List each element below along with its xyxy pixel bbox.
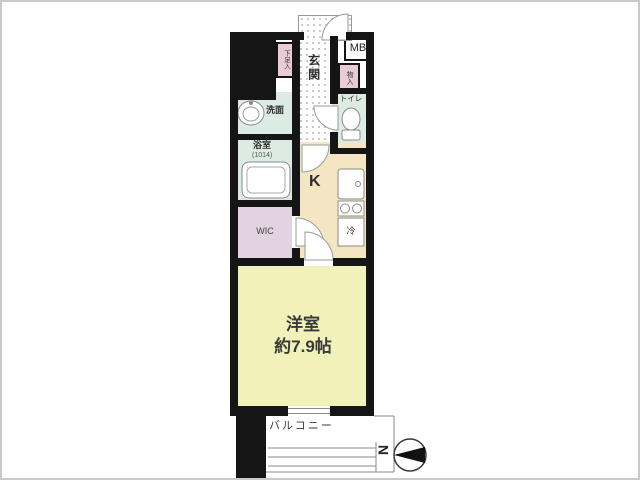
wall-ps-block — [230, 32, 276, 100]
bathroom-label: 浴室 — [253, 141, 271, 150]
floor-plan: N PS MB 下足入 物入 洗濯機 棚 玄関 トイレ 洗面 浴室 (1014)… — [0, 0, 640, 480]
hall-kitchen-door-arc — [302, 145, 329, 172]
main-room-area-label: 約7.9帖 — [274, 338, 332, 356]
wall-toilet-bottom — [330, 148, 374, 154]
toilet-icon — [342, 108, 360, 140]
wall-entrance-right — [330, 36, 338, 92]
stove-icon — [338, 201, 364, 216]
entrance-label: 玄関 — [307, 54, 320, 82]
washer-pan-icon — [338, 169, 364, 199]
bathroom-size-label: (1014) — [252, 152, 272, 159]
balcony-label: バルコニー — [269, 421, 334, 433]
sink-icon — [238, 101, 264, 125]
kitchen-label: K — [309, 174, 321, 191]
fixtures-layer: N — [2, 2, 640, 480]
compass-north-label: N — [375, 445, 391, 455]
wall-balcony-pillar — [236, 414, 266, 480]
washroom-label: 洗面 — [266, 106, 284, 115]
wall-wic-mainroom — [230, 258, 304, 266]
main-room-door-arc — [305, 232, 333, 260]
wall-core-vertical-upper — [292, 36, 300, 216]
bathtub-icon — [242, 162, 290, 198]
toilet-label: トイレ — [334, 95, 368, 103]
toilet-door-arc — [314, 106, 338, 130]
north-compass-icon: N — [375, 439, 426, 471]
wic-label-wrap: WIC — [238, 206, 292, 258]
fridge-label: 冷 — [346, 227, 355, 236]
window-lines — [288, 406, 330, 416]
main-room-label: 洋室 — [286, 316, 320, 334]
fridge-label-wrap: 冷 — [338, 218, 364, 246]
wic-label: WIC — [256, 227, 274, 236]
wall-kitchen-mainroom — [333, 258, 374, 266]
main-room-label-wrap: 洋室 約7.9帖 — [238, 266, 368, 406]
wall-bottom-right — [330, 406, 374, 416]
